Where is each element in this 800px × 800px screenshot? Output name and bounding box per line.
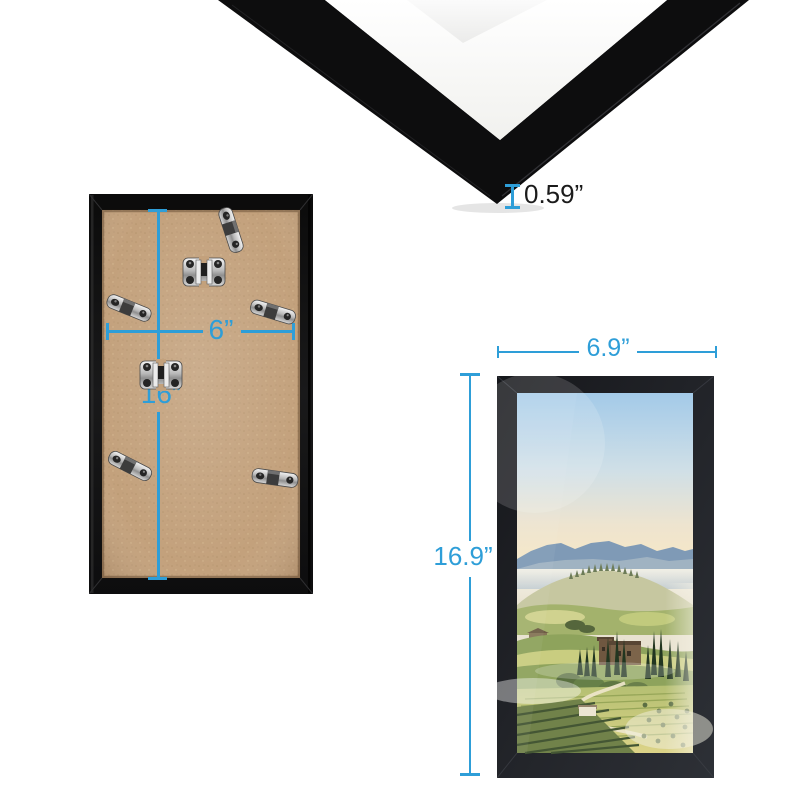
front-width-cap-right [715,346,717,358]
back-height-cap-bottom [148,577,167,580]
frame-corner-closeup-view [180,0,770,215]
small-white-building [579,707,596,716]
thickness-label: 0.59” [524,181,583,207]
back-width-label: 6” [200,316,242,344]
back-height-line-upper [157,211,160,382]
front-height-label: 16.9” [426,543,500,569]
frame-front-view [497,376,714,778]
frame-back-image [89,194,313,594]
front-width-line-right [637,351,715,353]
back-width-line-left [108,330,203,333]
front-width-label: 6.9” [578,336,638,361]
back-height-line-lower [157,412,160,579]
back-width-line-right [241,330,293,333]
back-height-label: 16” [134,380,188,408]
front-height-line-lower [469,577,471,773]
thickness-dimension-cap-bottom [505,206,520,209]
front-height-cap-bottom [460,773,480,776]
landscape-print [497,376,713,753]
product-dimension-diagram: 0.59” [0,0,800,800]
front-height-line-upper [469,376,471,541]
front-width-line-left [499,351,579,353]
frame-front-image [497,376,714,778]
back-width-cap-right [292,323,295,340]
frame-back-view [89,194,313,594]
frame-corner-closeup-image [180,0,770,215]
